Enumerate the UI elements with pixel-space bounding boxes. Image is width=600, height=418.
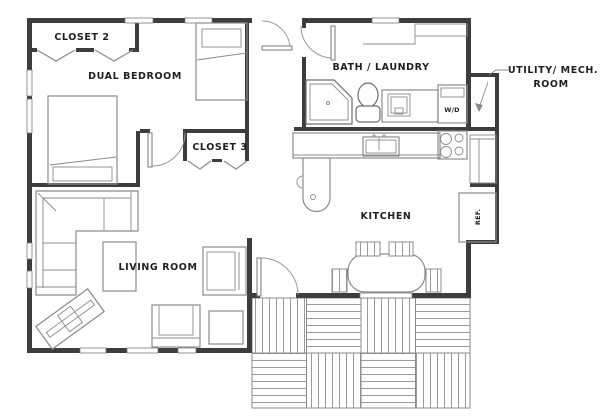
side-table [209,311,243,344]
bath-door [301,26,335,60]
toilet [356,83,380,122]
dining-chair [426,269,441,292]
dining-chair [356,242,380,256]
refrigerator: REF. [459,193,496,242]
double-bed [48,96,117,184]
kitchen-label: KITCHEN [361,211,412,222]
deck [252,298,470,408]
bath-laundry-label: BATH / LAUNDRY [332,62,429,73]
armchair-east [203,247,246,295]
dining-chair [332,269,347,292]
dining-table [332,242,441,292]
armchair-south [152,305,200,347]
pantry-counter [470,135,496,183]
closet3-bifold-doors [188,159,247,169]
front-door [262,21,292,50]
washer-dryer-label: W/D [444,106,460,114]
dual-bedroom-label: DUAL BEDROOM [88,71,182,82]
utility-mech-label-line1: UTILITY/ MECH. [508,65,598,76]
utility-mech-label-line2: ROOM [533,79,568,90]
floor-plan-drawing: W/D REF. [0,0,600,418]
sectional-sofa [36,191,138,295]
deck-entry-door [257,258,298,296]
kitchen-sink [363,135,399,156]
closet2-bifold-doors [37,48,133,61]
bath-shelf [363,24,467,44]
tv-console [36,289,104,349]
floor-plan: W/D REF. [0,0,600,418]
stove [438,131,467,159]
dining-chair [389,242,413,256]
closet2-label: CLOSET 2 [54,32,109,43]
washer-dryer: W/D [438,85,467,123]
refrigerator-label: REF. [474,209,482,225]
closet3-label: CLOSET 3 [192,142,247,153]
kitchen-peninsula [297,158,330,212]
bedroom-door [148,133,185,167]
shower [306,80,352,124]
bath-vanity-sink [382,90,438,122]
living-room-label: LIVING ROOM [118,262,197,273]
twin-bed [196,23,247,100]
